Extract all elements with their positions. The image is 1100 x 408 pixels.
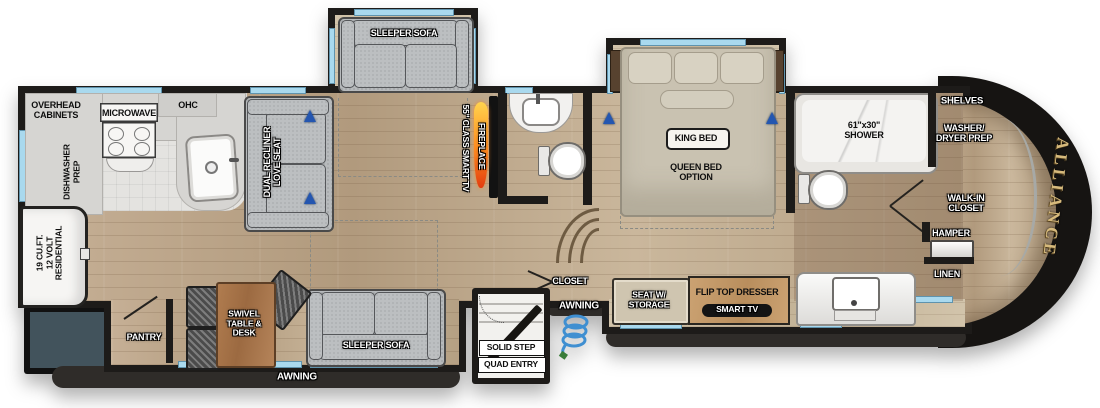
coach-body: OVERHEAD CABINETS MICROWAVE OHC DISHWASH… [0,0,1100,408]
hose-icon [556,312,592,360]
washer-dryer-label: WASHER/ DRYER PREP [936,123,992,143]
sofa-cushion [374,292,428,336]
shower-label: 61"x30" SHOWER [844,120,883,140]
marker-triangle-icon [304,110,316,122]
microwave-label: MICROWAVE [102,108,156,118]
linen-wall [924,257,974,264]
desk-chair [186,328,220,370]
ohc-label: OHC [178,100,197,110]
bed-pillow [720,52,764,84]
bed-pillow [674,52,718,84]
loveseat-label: DUAL RECLINER LOVE SEAT [262,127,282,198]
midbath-faucet [536,94,540,104]
window [354,9,454,16]
midbath-toilet-bowl [548,142,586,180]
walkin-closet-label: WALK-IN CLOSET [947,193,984,213]
desk-chair [186,286,220,328]
tv-55in [489,96,498,198]
awning-left-label: AWNING [277,371,317,382]
window [329,28,335,84]
sofa-armrest [427,292,441,360]
frontbath-toilet-bowl [808,170,848,210]
smart-tv-label: SMART TV [716,305,758,315]
shower-right-wall [928,93,936,167]
kitchen-faucet [229,158,239,162]
refrigerator-label: 19 CU.FT. 12 VOLT RESIDENTIAL [36,226,65,280]
burner [108,127,124,141]
seat-with-storage-label: SEAT W/ STORAGE [629,290,669,309]
sofa-cushion [354,44,406,88]
living-bath-wall [498,93,507,203]
sofa-cushion [405,44,457,88]
burner [134,127,150,141]
smart-tv-55-label: 55" CLASS SMART TV [460,105,470,192]
bed-pillow [628,52,672,84]
window [640,39,746,46]
sofa-armrest [341,20,355,88]
loveseat-armrest [247,212,329,228]
sofa-armrest [455,20,469,88]
awning-right-label: AWNING [559,300,599,311]
midbath-right-wall [583,93,592,205]
window [913,296,953,303]
midbath-sink [522,98,560,126]
flip-top-dresser [688,276,790,325]
slide-travel-dashed [338,98,468,177]
linen-label: LINEN [934,269,960,279]
sofa-armrest [309,292,323,360]
vanity-faucet [851,300,857,306]
closet-wall-stub [922,222,930,242]
shelves-label: SHELVES [941,97,983,108]
quad-entry-label: QUAD ENTRY [484,360,538,370]
range-hood [106,158,154,172]
midbath-bottom-wall [498,196,548,204]
fireplace-label: FIREPLACE [476,123,486,169]
pantry-label: PANTRY [127,332,162,342]
marker-triangle-icon [304,192,316,204]
bed-lumbar-pillow [660,90,734,109]
entry-closet-label: CLOSET [552,276,587,286]
queen-bed-option-label: QUEEN BED OPTION [670,162,722,182]
window [250,87,306,94]
kitchen-faucet-knob [205,161,218,174]
marker-triangle-icon [766,112,778,124]
vanity-sink [832,277,880,311]
pantry-wall [166,299,173,363]
swivel-table-label: SWIVEL TABLE & DESK [227,310,262,339]
solid-step-label: SOLID STEP [487,343,536,353]
burner [108,142,124,156]
rv-floorplan: OVERHEAD CABINETS MICROWAVE OHC DISHWASH… [0,0,1100,408]
vanity-drawer [834,310,876,321]
overhead-cabinets-label: OVERHEAD CABINETS [31,100,80,120]
rear-storage-bay-fill [30,312,110,368]
flip-top-dresser-label: FLIP TOP DRESSER [696,287,779,297]
sleeper-sofa-bottom-label: SLEEPER SOFA [343,340,410,350]
marker-triangle-icon [603,112,615,124]
king-bed-label: KING BED [675,133,717,143]
sleeper-sofa-top-label: SLEEPER SOFA [371,28,438,38]
burner [134,142,150,156]
loveseat-armrest [247,99,329,115]
sofa-cushion [321,292,375,336]
entry-step-line [479,321,543,323]
refrigerator-handle [80,248,90,260]
dishwasher-prep-label: DISHWASHER PREP [62,144,81,200]
hamper-label: HAMPER [932,228,970,238]
